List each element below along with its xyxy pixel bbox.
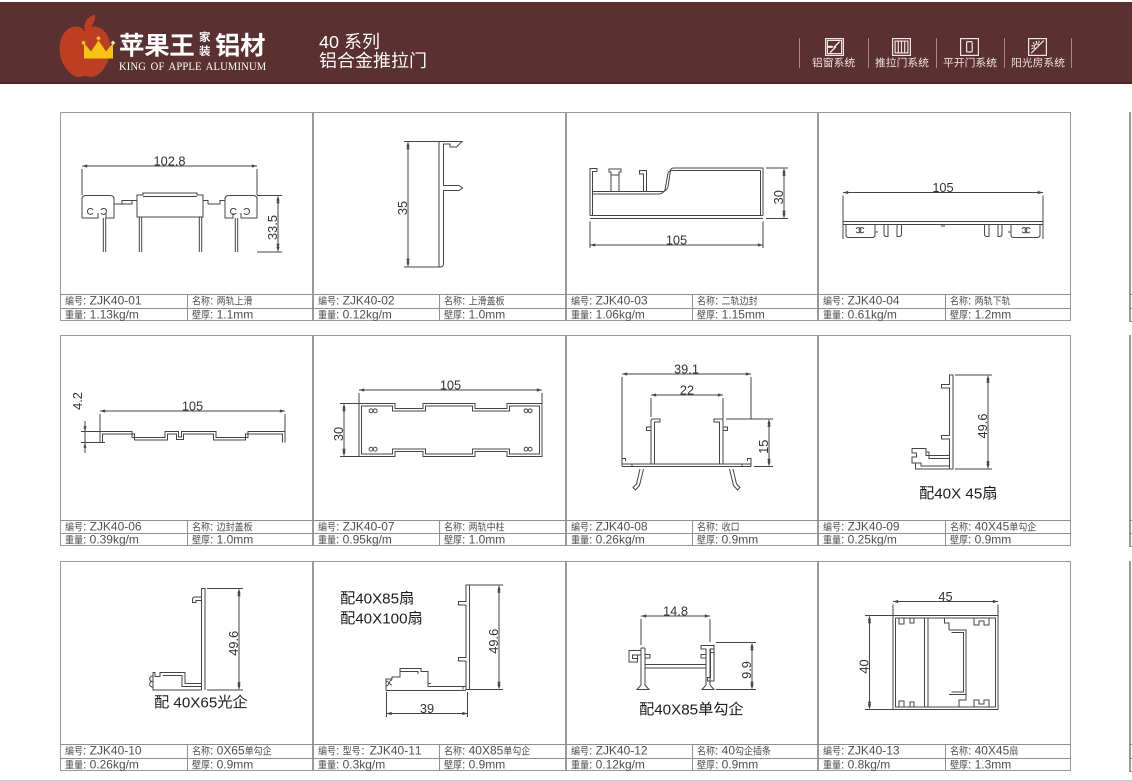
svg-text:: ZJK40-09: : ZJK40-09 (841, 520, 900, 533)
svg-text:39: 39 (420, 701, 434, 716)
svg-text:: 1.3mm: : 1.3mm (968, 758, 1011, 771)
svg-text:14.8: 14.8 (663, 604, 688, 619)
svg-text:: 1.13kg/m: : 1.13kg/m (83, 308, 139, 321)
svg-text::: : (462, 520, 469, 533)
svg-text:: 0.9mm: : 0.9mm (462, 758, 505, 771)
svg-text:: 0.9mm: : 0.9mm (715, 533, 758, 546)
svg-text:40X 45: 40X 45 (934, 485, 982, 501)
svg-text:: 0.3kg/m: : 0.3kg/m (336, 758, 385, 771)
svg-text:: 40: : 40 (715, 744, 735, 757)
svg-text::: : (209, 294, 216, 307)
svg-text:49.6: 49.6 (975, 414, 990, 439)
svg-text:30: 30 (770, 190, 785, 204)
svg-text:: 0.95kg/m: : 0.95kg/m (336, 533, 392, 546)
svg-text:40X85: 40X85 (355, 590, 399, 606)
svg-text:: ZJK40-08: : ZJK40-08 (588, 520, 647, 533)
svg-text:4.2: 4.2 (70, 392, 85, 410)
svg-text:49.6: 49.6 (486, 629, 501, 654)
svg-text:: ZJK40-04: : ZJK40-04 (841, 294, 900, 307)
svg-text::: : (462, 294, 469, 307)
svg-text:105: 105 (932, 180, 953, 195)
svg-text:: 0.9mm: : 0.9mm (210, 758, 253, 771)
svg-text:: 0.12kg/m: : 0.12kg/m (589, 758, 645, 771)
svg-text:: 1.0mm: : 1.0mm (462, 533, 505, 546)
svg-text:9.9: 9.9 (738, 661, 753, 679)
svg-text:: ZJK40-01: : ZJK40-01 (83, 294, 142, 307)
svg-text:: 0.9mm: : 0.9mm (715, 758, 758, 771)
svg-text:: ZJK40-06: : ZJK40-06 (83, 520, 142, 533)
svg-text:: 0.26kg/m: : 0.26kg/m (589, 533, 645, 546)
svg-text:: ZJK40-10: : ZJK40-10 (83, 744, 142, 757)
svg-text:: 0.39kg/m: : 0.39kg/m (83, 533, 139, 546)
svg-text::: : (209, 520, 216, 533)
svg-text:: 0.61kg/m: : 0.61kg/m (841, 308, 897, 321)
svg-text:: 40X45: : 40X45 (968, 520, 1010, 533)
svg-text:39.1: 39.1 (674, 362, 699, 377)
svg-text:49.6: 49.6 (226, 631, 241, 656)
svg-text:45: 45 (938, 589, 952, 604)
svg-text:105: 105 (665, 233, 686, 248)
svg-text::: : (715, 520, 722, 533)
svg-text::: : (967, 294, 974, 307)
svg-text:: 0.25kg/m: : 0.25kg/m (841, 533, 897, 546)
svg-text:40X85: 40X85 (654, 701, 698, 717)
svg-text:: 0X65: : 0X65 (210, 744, 245, 757)
svg-text:: 40X45: : 40X45 (967, 744, 1009, 757)
svg-text:: 0.12kg/m: : 0.12kg/m (336, 308, 392, 321)
svg-text:: ZJK40-13: : ZJK40-13 (841, 744, 900, 757)
svg-text:: 1.2mm: : 1.2mm (968, 308, 1011, 321)
svg-text:: ZJK40-03: : ZJK40-03 (588, 294, 647, 307)
svg-text::: : (336, 744, 343, 757)
svg-text:102.8: 102.8 (153, 154, 185, 169)
svg-text:: ZJK40-02: : ZJK40-02 (336, 294, 395, 307)
svg-text:105: 105 (182, 399, 203, 414)
svg-text:: 40X85: : 40X85 (462, 744, 504, 757)
svg-text:: 0.8kg/m: : 0.8kg/m (841, 758, 890, 771)
svg-text::: : (715, 294, 722, 307)
svg-text:15: 15 (755, 440, 770, 454)
svg-text:ZJK40-11: ZJK40-11 (370, 744, 422, 757)
svg-text:22: 22 (679, 383, 693, 398)
svg-text:40X100: 40X100 (355, 610, 407, 626)
svg-text:40X65: 40X65 (169, 694, 217, 710)
svg-text:: ZJK40-12: : ZJK40-12 (588, 744, 647, 757)
svg-text:: 0.9mm: : 0.9mm (968, 533, 1011, 546)
svg-text:30: 30 (331, 427, 346, 441)
svg-text:35: 35 (395, 201, 410, 215)
svg-text:: 1.0mm: : 1.0mm (462, 308, 505, 321)
svg-text:105: 105 (440, 378, 461, 393)
svg-text:: ZJK40-07: : ZJK40-07 (336, 520, 395, 533)
svg-text:40: 40 (856, 659, 871, 673)
svg-text:33.5: 33.5 (265, 215, 280, 240)
svg-text:40: 40 (319, 32, 344, 52)
svg-text:: 0.26kg/m: : 0.26kg/m (83, 758, 139, 771)
svg-text:: 1.0mm: : 1.0mm (210, 533, 253, 546)
svg-text:: 1.1mm: : 1.1mm (210, 308, 253, 321)
svg-text:: 1.06kg/m: : 1.06kg/m (589, 308, 645, 321)
svg-text:: 1.15mm: : 1.15mm (715, 308, 765, 321)
